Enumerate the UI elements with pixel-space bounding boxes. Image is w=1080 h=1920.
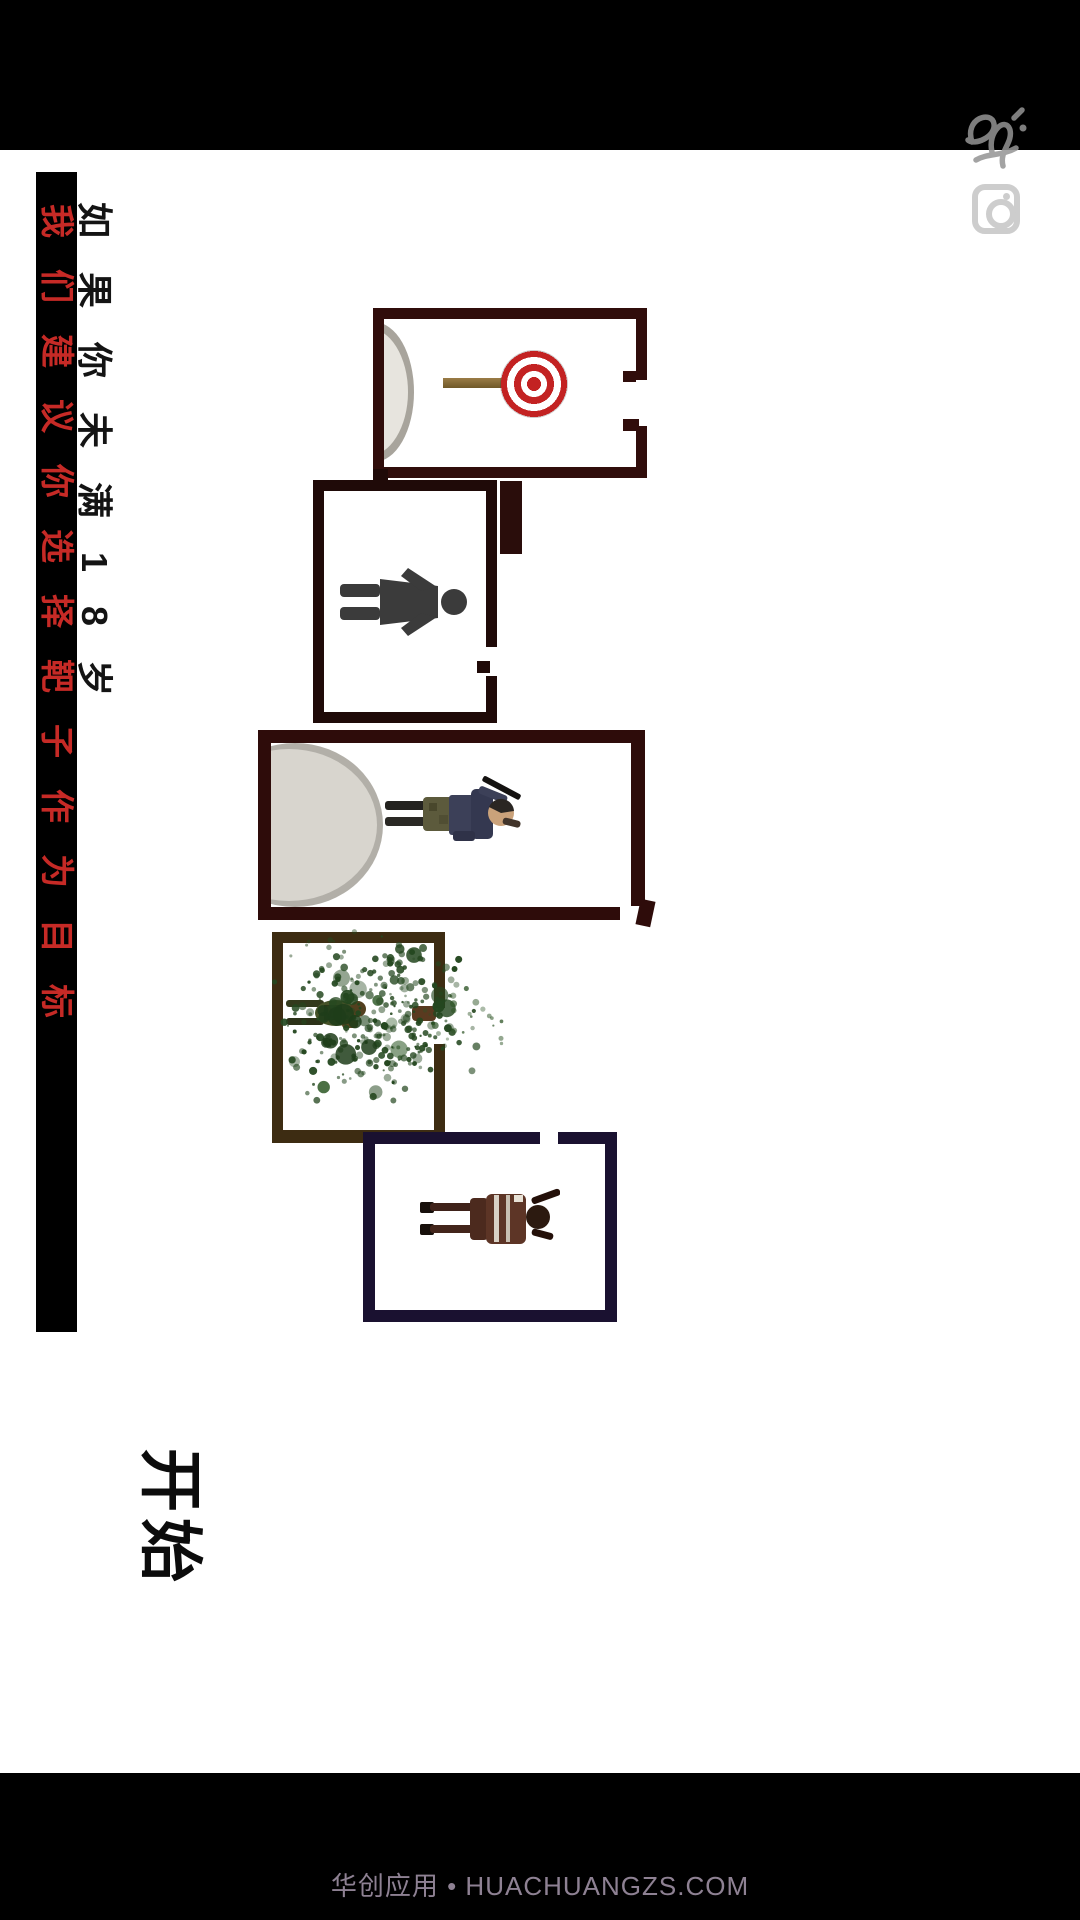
gray-disc	[271, 743, 383, 907]
camera-watermark-icon	[972, 184, 1020, 234]
wall	[373, 467, 647, 478]
target-post	[443, 378, 503, 388]
wall	[363, 1132, 540, 1144]
person-silhouette	[336, 562, 468, 642]
wall	[258, 730, 645, 743]
wall	[636, 308, 647, 380]
door-jamb	[623, 419, 639, 431]
wall	[313, 480, 497, 491]
footer-watermark-text: 华创应用 • HUACHUANGZS.COM	[0, 1866, 1080, 1903]
wall	[313, 712, 497, 723]
wall	[363, 1132, 375, 1322]
wall	[363, 1310, 617, 1322]
game-screen: 华创应用 • HUACHUANGZS.COM 如果你未满18岁 我们建议你选择靶…	[0, 0, 1080, 1920]
status-bar	[0, 0, 1080, 150]
warning-line1: 如果你未满18岁	[74, 202, 114, 730]
gray-disc-edge	[384, 320, 414, 466]
camera-flash-dot-icon	[1003, 193, 1010, 200]
wall	[373, 308, 647, 319]
wall	[486, 676, 497, 723]
wall	[313, 480, 324, 723]
wall	[258, 730, 271, 920]
door-jamb	[477, 661, 490, 673]
wall	[631, 730, 645, 906]
standing-soldier-sprite	[420, 1186, 560, 1258]
wall	[605, 1132, 617, 1322]
signature-watermark-icon	[956, 106, 1032, 182]
door-jamb	[623, 371, 636, 382]
warning-line2: 我们建议你选择靶子作为目标	[36, 204, 76, 1049]
bullseye-target	[500, 350, 568, 418]
camera-lens-icon	[986, 199, 1016, 229]
splatter-dots	[272, 926, 508, 1112]
soldier-rifle-sprite	[383, 773, 533, 855]
wall	[636, 426, 647, 478]
signature-dot	[1020, 125, 1027, 132]
start-button[interactable]: 开始	[134, 1448, 206, 1588]
wall-nub	[373, 469, 388, 481]
wall	[258, 907, 620, 920]
wall	[486, 480, 497, 647]
wall	[373, 308, 384, 478]
corridor-wall	[500, 481, 522, 554]
